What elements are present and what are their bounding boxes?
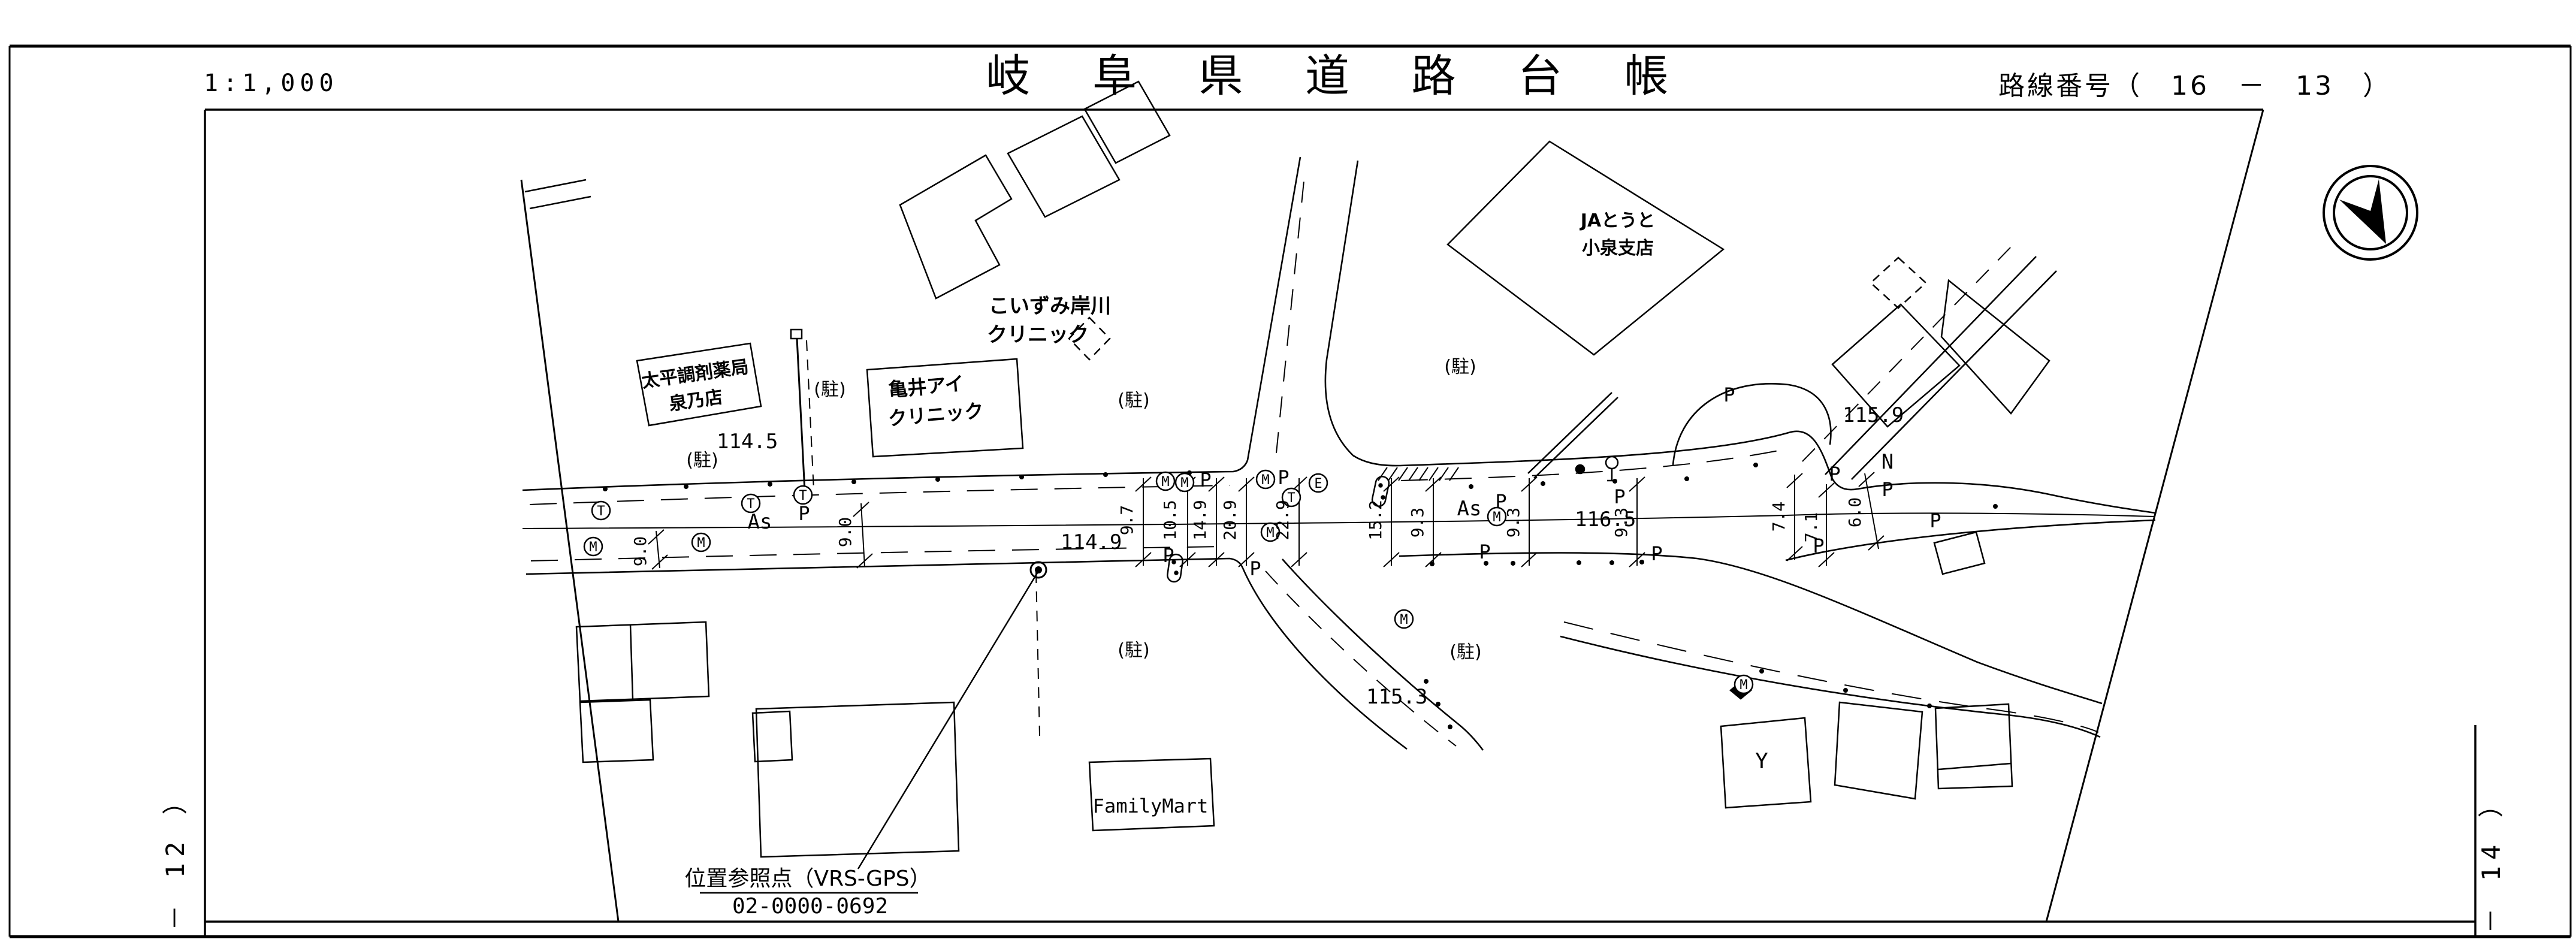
label-kamei-line1: 亀井アイ (887, 372, 965, 401)
road-se-lower-edge (1560, 636, 2100, 737)
svg-text:M: M (697, 536, 705, 551)
svg-text:T: T (597, 504, 605, 519)
svg-text:P: P (1162, 544, 1174, 567)
svg-text:P: P (1723, 384, 1735, 406)
svg-text:E: E (1314, 476, 1322, 491)
symbol-M-9: M (1735, 675, 1753, 693)
branch-north-centerline-dash (1276, 181, 1304, 453)
gps-reference-point (858, 562, 1046, 869)
parking-loop-edge (1673, 384, 1831, 465)
map-name-labels: JAとうと 小泉支店 こいずみ岸川 クリニック 太平調剤薬局 泉乃店 亀井アイ … (641, 210, 1656, 919)
svg-text:P: P (1882, 478, 1893, 501)
pole-dot (1576, 465, 1584, 473)
road-ne-track-a (1825, 256, 2036, 475)
road-branch-north-left-edge (1248, 157, 1300, 460)
label-y-symbol: Y (1755, 749, 1768, 774)
svg-text:9.3: 9.3 (1408, 508, 1427, 538)
surface-labels: As As N Y (748, 450, 1894, 774)
label-taihei-line2: 泉乃店 (668, 387, 724, 415)
symbol-M-2: M (692, 533, 710, 551)
sheet-scale: 1:1,000 (204, 70, 339, 97)
label-koizumi-line2: クリニック (987, 323, 1089, 347)
symbol-M-1: M (584, 538, 602, 555)
svg-text:M: M (1400, 612, 1408, 627)
label-taihei-line1: 太平調剤薬局 (641, 357, 750, 393)
dimension-labels: 9.0 9.7 10.5 14.9 20.9 22.9 15.2 9.3 9.3… (630, 497, 1865, 567)
elevation-115-9: 115.9 (1843, 403, 1904, 427)
svg-text:As: As (748, 510, 772, 534)
svg-text:14.9: 14.9 (1190, 500, 1210, 540)
building-koizumi-clinic-b (1008, 116, 1119, 217)
gutter-dash-top-east (1401, 449, 1784, 481)
svg-text:22.9: 22.9 (1273, 500, 1292, 540)
svg-text:P: P (1929, 509, 1941, 532)
gutter-dash-top-west (530, 485, 1230, 505)
guardrail-a (1528, 393, 1612, 473)
svg-text:7.4: 7.4 (1769, 502, 1789, 532)
fence-center-dash (1036, 572, 1040, 736)
label-ja-line2: 小泉支店 (1582, 238, 1654, 259)
road-ne-track-b (1852, 271, 2056, 479)
branch-south-centerline-dash (1266, 571, 1456, 746)
road-edge-top-east (1399, 431, 2155, 513)
svg-text:M: M (1161, 475, 1169, 490)
building-northeast-shed-dashed (1871, 258, 1926, 308)
svg-text:M: M (589, 540, 597, 555)
building-west-a-divider (630, 624, 633, 699)
svg-text:P: P (1479, 541, 1490, 563)
svg-text:(駐): (駐) (814, 379, 845, 400)
margin-label-right: － 14 ） (2477, 786, 2506, 933)
margin-label-left: － 12 ） (161, 783, 190, 930)
svg-text:P: P (1651, 542, 1662, 565)
guardrail-b (1534, 397, 1618, 478)
building-southwest-large (756, 702, 959, 857)
svg-text:10.5: 10.5 (1160, 500, 1180, 540)
utility-pole-icon (1606, 457, 1618, 469)
svg-text:As: As (1457, 497, 1482, 521)
label-kamei-line2: クリニック (887, 399, 985, 430)
svg-text:P: P (1200, 469, 1211, 491)
fence-west-cap (791, 330, 802, 339)
building-southwest-small (753, 711, 792, 762)
neatline-left (521, 180, 618, 922)
label-vrs-line2: 02-0000-0692 (732, 894, 888, 919)
svg-text:P: P (798, 502, 810, 525)
svg-text:M: M (1180, 476, 1188, 491)
svg-text:9.7: 9.7 (1117, 505, 1137, 536)
building-koizumi-clinic-a (900, 155, 1011, 298)
fence-west-solid (797, 339, 805, 491)
svg-text:(駐): (駐) (1118, 390, 1149, 411)
svg-text:9.0: 9.0 (630, 536, 650, 567)
gps-leader-line (858, 571, 1038, 869)
symbol-M-5: M (1257, 470, 1275, 488)
building-south-right-divider (1938, 763, 2011, 769)
svg-text:15.2: 15.2 (1366, 500, 1385, 540)
neatline-tick-a (525, 180, 586, 192)
svg-text:P: P (1614, 485, 1625, 508)
svg-text:M: M (1261, 473, 1269, 488)
svg-text:20.9: 20.9 (1220, 500, 1240, 540)
label-koizumi-line1: こいずみ岸川 (989, 294, 1111, 318)
building-south-right (1935, 704, 2012, 789)
svg-text:P: P (1829, 463, 1840, 485)
svg-text:6.0: 6.0 (1845, 497, 1865, 528)
building-west-a (576, 622, 709, 701)
svg-text:9.3: 9.3 (1611, 508, 1631, 538)
road-network (523, 157, 2155, 750)
elevation-114-9: 114.9 (1061, 530, 1122, 554)
building-south-mid (1835, 702, 1922, 799)
symbol-M-4: M (1176, 473, 1194, 491)
building-northeast-partial (1941, 280, 2049, 413)
label-vrs-line1: 位置参照点（VRS-GPS） (684, 866, 931, 891)
svg-text:P: P (1813, 535, 1824, 557)
svg-text:9.0: 9.0 (835, 517, 855, 548)
label-n: N (1882, 450, 1894, 474)
building-east-small (1934, 532, 1985, 574)
svg-text:(駐): (駐) (686, 450, 718, 471)
fence-west-dash (807, 340, 814, 490)
svg-text:T: T (799, 488, 807, 503)
svg-text:P: P (1278, 466, 1289, 489)
route-number: 路線番号（ 16 － 13 ） (1998, 71, 2391, 101)
svg-text:P: P (1495, 490, 1506, 513)
sheet-title: 岐 阜 県 道 路 台 帳 (986, 50, 1692, 102)
svg-text:(駐): (駐) (1118, 640, 1149, 661)
gps-point-dot (1035, 566, 1042, 573)
road-ne-side-dash (1802, 244, 2013, 461)
label-ja-line1: JAとうと (1580, 210, 1655, 231)
road-ledger-sheet: 1:1,000 岐 阜 県 道 路 台 帳 路線番号（ 16 － 13 ） － … (0, 0, 2576, 942)
svg-text:(駐): (駐) (1444, 357, 1476, 378)
road-branch-north-right-edge (1325, 161, 1399, 466)
svg-text:M: M (1740, 678, 1747, 693)
label-familymart: FamilyMart (1093, 795, 1209, 817)
road-east-lower-edge (1786, 520, 2155, 560)
elevation-115-3: 115.3 (1366, 685, 1427, 709)
svg-text:(駐): (駐) (1449, 642, 1481, 663)
symbol-T-1: T (592, 502, 610, 520)
road-edge-top-west (523, 460, 1248, 490)
symbol-E-1: E (1309, 474, 1327, 492)
north-arrow-needle (2339, 179, 2386, 244)
symbol-M-3: M (1156, 472, 1174, 490)
north-arrow-icon (2324, 166, 2417, 259)
svg-text:P: P (1249, 557, 1261, 580)
symbol-M-8: M (1395, 610, 1413, 628)
neatline-right (2046, 110, 2263, 922)
symbol-T-3: T (794, 486, 812, 504)
neatline-tick-b (530, 197, 591, 209)
elevation-114-5: 114.5 (717, 430, 778, 454)
